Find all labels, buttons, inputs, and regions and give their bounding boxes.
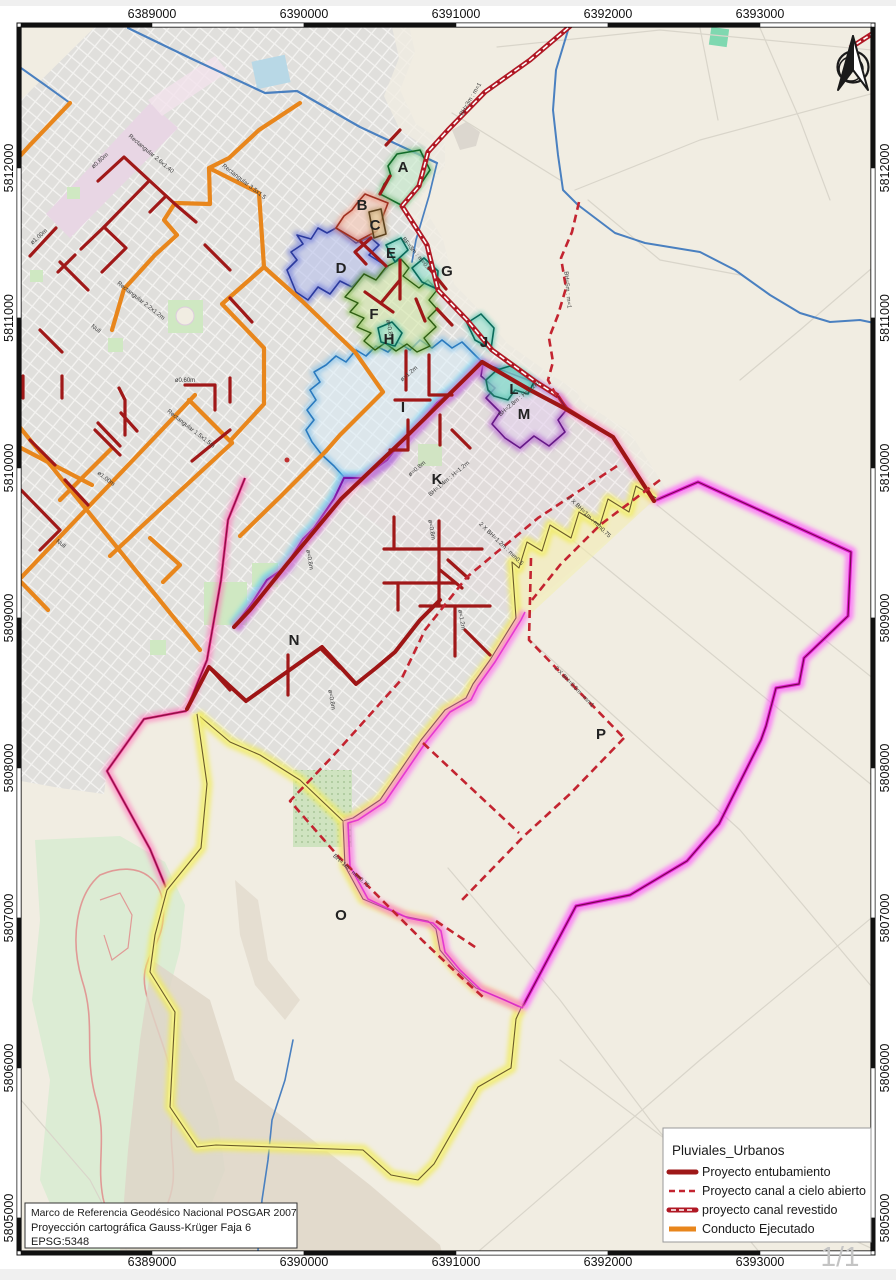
- svg-text:6389000: 6389000: [128, 7, 177, 21]
- svg-text:6390000: 6390000: [280, 1255, 329, 1269]
- svg-text:6393000: 6393000: [736, 1255, 785, 1269]
- svg-text:1/1: 1/1: [821, 1241, 860, 1272]
- svg-text:6390000: 6390000: [280, 7, 329, 21]
- svg-text:I: I: [401, 399, 405, 416]
- svg-text:5810000: 5810000: [2, 444, 16, 493]
- svg-text:E: E: [386, 245, 396, 262]
- svg-text:Conducto Ejecutado: Conducto Ejecutado: [702, 1222, 815, 1236]
- svg-text:5811000: 5811000: [2, 294, 16, 342]
- svg-text:5805000: 5805000: [2, 1194, 16, 1243]
- svg-text:5808000: 5808000: [2, 744, 16, 793]
- svg-text:L: L: [509, 381, 518, 398]
- svg-text:K: K: [432, 471, 443, 488]
- svg-text:5807000: 5807000: [878, 894, 892, 943]
- svg-text:6393000: 6393000: [736, 7, 785, 21]
- svg-text:ø0.60m: ø0.60m: [175, 378, 195, 384]
- svg-text:G: G: [441, 263, 453, 280]
- svg-text:5807000: 5807000: [2, 894, 16, 943]
- svg-text:H: H: [384, 331, 395, 348]
- svg-text:5812000: 5812000: [2, 144, 16, 193]
- svg-text:Marco de Referencia Geodésico: Marco de Referencia Geodésico Nacional P…: [31, 1208, 297, 1219]
- svg-text:6392000: 6392000: [584, 7, 633, 21]
- svg-text:Proyecto entubamiento: Proyecto entubamiento: [702, 1165, 831, 1179]
- svg-text:EPSG:5348: EPSG:5348: [31, 1236, 89, 1248]
- svg-text:5806000: 5806000: [878, 1044, 892, 1093]
- svg-text:6392000: 6392000: [584, 1255, 633, 1269]
- svg-text:P: P: [596, 726, 606, 743]
- svg-text:J: J: [480, 334, 488, 351]
- svg-text:Pluviales_Urbanos: Pluviales_Urbanos: [672, 1143, 785, 1158]
- svg-text:B: B: [357, 197, 368, 214]
- svg-text:N: N: [289, 632, 300, 649]
- svg-text:O: O: [335, 907, 347, 924]
- svg-text:6391000: 6391000: [432, 1255, 481, 1269]
- svg-text:5809000: 5809000: [878, 594, 892, 643]
- svg-text:5809000: 5809000: [2, 594, 16, 643]
- svg-text:6389000: 6389000: [128, 1255, 177, 1269]
- svg-text:M: M: [518, 406, 531, 423]
- svg-text:5810000: 5810000: [878, 444, 892, 493]
- svg-text:Proyecto canal a cielo abierto: Proyecto canal a cielo abierto: [702, 1184, 866, 1198]
- svg-text:Proyección cartográfica Gauss-: Proyección cartográfica Gauss-Krüger Faj…: [31, 1222, 251, 1234]
- svg-text:5805000: 5805000: [878, 1194, 892, 1243]
- svg-text:5811000: 5811000: [878, 294, 892, 342]
- svg-text:5808000: 5808000: [878, 744, 892, 793]
- svg-text:6391000: 6391000: [432, 7, 481, 21]
- svg-text:5812000: 5812000: [878, 144, 892, 193]
- svg-text:F: F: [369, 306, 378, 323]
- svg-text:5806000: 5806000: [2, 1044, 16, 1093]
- svg-text:D: D: [336, 260, 347, 277]
- svg-text:A: A: [398, 159, 409, 176]
- svg-text:C: C: [370, 217, 381, 234]
- svg-text:proyecto canal revestido: proyecto canal revestido: [702, 1203, 838, 1217]
